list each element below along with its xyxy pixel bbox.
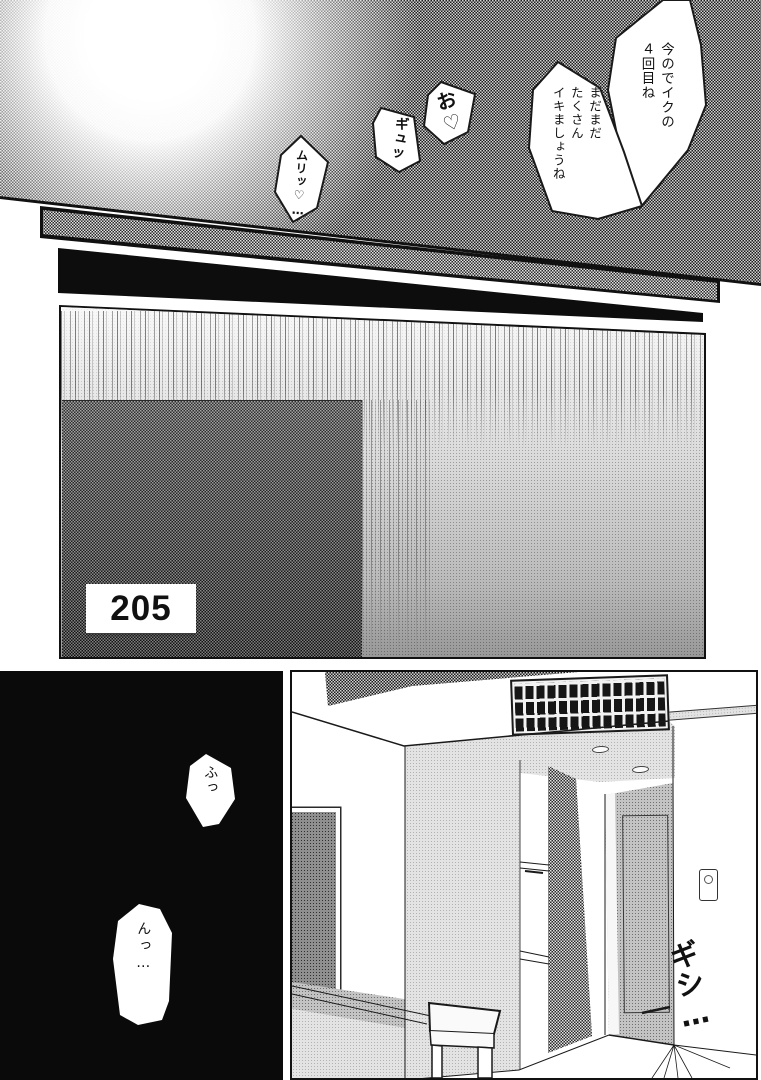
room-panel: ギシ… — [290, 670, 758, 1080]
black-panel: ふっ んっ… — [0, 671, 283, 1080]
room-number-sign: 205 — [86, 584, 196, 633]
manga-page: 今のでイクの ４回目ね まだまだ たくさん イキましょうね お♡ ギュッ ムリッ… — [0, 0, 761, 1080]
wall-stripe-texture-side — [362, 400, 434, 657]
dialogue-mada: まだまだ たくさん イキましょうね — [545, 86, 603, 218]
black-panel-bubbles — [0, 671, 283, 1080]
dialogue-fu: ふっ — [200, 765, 220, 795]
dialogue-iku: 今のでイクの ４回目ね — [627, 42, 675, 212]
room-scene: ギシ… — [292, 672, 756, 1078]
room-door-dark: 205 — [62, 400, 362, 658]
dialogue-n: んっ… — [133, 921, 153, 974]
door-panel-wall: 205 — [59, 305, 706, 659]
door-panel: 205 — [59, 305, 706, 659]
